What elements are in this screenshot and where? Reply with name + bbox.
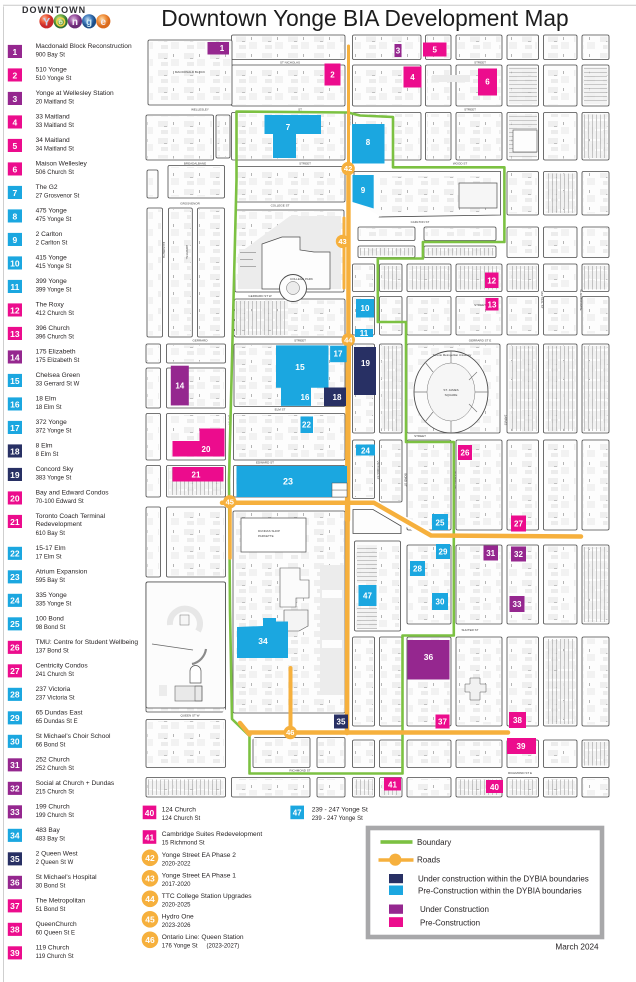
svg-text:RICHMOND ST E: RICHMOND ST E <box>508 771 532 775</box>
svg-text:Yonge at Wellesley Station: Yonge at Wellesley Station <box>36 90 114 97</box>
svg-text:8 Elm St: 8 Elm St <box>36 452 59 458</box>
svg-text:22: 22 <box>302 421 311 430</box>
svg-text:5: 5 <box>13 141 18 151</box>
svg-text:18 Elm St: 18 Elm St <box>36 405 62 411</box>
svg-text:98 Bond St: 98 Bond St <box>36 625 66 631</box>
svg-text:20 Maitland St: 20 Maitland St <box>36 100 75 106</box>
svg-text:176 Yonge St (2023-2027): 176 Yonge St (2023-2027) <box>162 943 239 949</box>
svg-text:Maison Wellesley: Maison Wellesley <box>36 160 88 167</box>
svg-text:CARLTON ST: CARLTON ST <box>411 220 430 224</box>
svg-text:510 Yonge: 510 Yonge <box>36 66 68 73</box>
svg-text:237 Victoria St: 237 Victoria St <box>36 695 75 701</box>
svg-text:QUEEN ST W: QUEEN ST W <box>181 714 200 718</box>
svg-text:37: 37 <box>438 718 447 727</box>
svg-text:SQUARE: SQUARE <box>445 393 458 397</box>
svg-text:BREADALBANE: BREADALBANE <box>184 162 206 166</box>
svg-text:23: 23 <box>10 572 20 582</box>
svg-text:43: 43 <box>145 874 155 884</box>
svg-text:36: 36 <box>10 878 20 888</box>
svg-text:Y: Y <box>43 17 51 29</box>
svg-text:21: 21 <box>10 517 20 527</box>
svg-text:JARVIS: JARVIS <box>504 415 508 425</box>
svg-text:39: 39 <box>517 742 526 751</box>
svg-text:900 Bay St: 900 Bay St <box>36 53 66 59</box>
svg-text:18 Elm: 18 Elm <box>36 395 57 402</box>
svg-text:24: 24 <box>10 596 20 606</box>
svg-text:SHERBOURNE: SHERBOURNE <box>579 289 583 310</box>
svg-text:372 Yonge St: 372 Yonge St <box>36 429 72 435</box>
svg-text:28: 28 <box>413 565 422 574</box>
svg-text:396 Church St: 396 Church St <box>36 335 75 341</box>
svg-text:175 Elizabeth: 175 Elizabeth <box>36 348 76 355</box>
svg-text:27 Grosvenor St: 27 Grosvenor St <box>36 194 80 200</box>
svg-text:STREET: STREET <box>414 434 426 438</box>
svg-text:Ontario Line: Queen Station: Ontario Line: Queen Station <box>162 934 244 941</box>
svg-text:175 Elizabeth St: 175 Elizabeth St <box>36 358 80 364</box>
svg-text:475 Yonge St: 475 Yonge St <box>36 217 72 223</box>
svg-text:412 Church St: 412 Church St <box>36 311 75 317</box>
svg-text:65 Dundas St E: 65 Dundas St E <box>36 719 78 725</box>
svg-text:4: 4 <box>410 73 415 82</box>
svg-text:WELLESLEY: WELLESLEY <box>191 108 209 112</box>
svg-text:17: 17 <box>10 423 20 433</box>
svg-text:335 Yonge St: 335 Yonge St <box>36 601 72 607</box>
svg-text:2: 2 <box>13 70 18 80</box>
svg-text:15: 15 <box>10 376 20 386</box>
svg-text:14: 14 <box>10 352 20 362</box>
svg-text:3: 3 <box>13 94 18 104</box>
svg-text:STREET: STREET <box>294 339 306 343</box>
svg-text:483 Bay: 483 Bay <box>36 827 61 834</box>
svg-text:Downtown Yonge BIA Development: Downtown Yonge BIA Development Map <box>161 5 568 31</box>
svg-text:Centricity Condos: Centricity Condos <box>36 662 89 669</box>
svg-text:239 - 247 Yonge St: 239 - 247 Yonge St <box>312 816 363 822</box>
svg-text:70-100 Edward St: 70-100 Edward St <box>36 499 84 505</box>
svg-text:35: 35 <box>337 718 346 727</box>
svg-text:WOOD ST: WOOD ST <box>453 162 467 166</box>
svg-text:VICTORIA ST: VICTORIA ST <box>376 461 380 480</box>
svg-text:6: 6 <box>485 78 490 87</box>
svg-text:Hydro One: Hydro One <box>162 914 194 921</box>
svg-text:QueenChurch: QueenChurch <box>36 921 77 928</box>
svg-text:35: 35 <box>10 854 20 864</box>
svg-text:42: 42 <box>344 164 352 173</box>
svg-text:483 Bay St: 483 Bay St <box>36 836 66 842</box>
svg-text:33 Maitland: 33 Maitland <box>36 113 70 120</box>
svg-text:Concord Sky: Concord Sky <box>36 466 74 473</box>
svg-text:40: 40 <box>490 783 499 792</box>
svg-text:ST NICHOLAS: ST NICHOLAS <box>280 61 300 65</box>
svg-text:26: 26 <box>10 643 20 653</box>
svg-text:St Michael's Hospital: St Michael's Hospital <box>36 874 98 881</box>
svg-text:2020-2025: 2020-2025 <box>162 902 191 908</box>
svg-text:17: 17 <box>334 350 343 359</box>
svg-text:Cambridge Suites Redevelopment: Cambridge Suites Redevelopment <box>162 831 263 838</box>
svg-text:Toronto Metropolitan Universit: Toronto Metropolitan University <box>433 353 472 357</box>
svg-text:Bay and Edward Condos: Bay and Edward Condos <box>36 489 110 496</box>
svg-text:2 Carlton: 2 Carlton <box>36 231 63 238</box>
svg-text:46: 46 <box>145 935 155 945</box>
svg-text:Under construction within the: Under construction within the DYBIA boun… <box>418 875 589 884</box>
svg-text:11: 11 <box>360 329 369 338</box>
svg-text:252 Church St: 252 Church St <box>36 766 75 772</box>
svg-text:2 Queen West: 2 Queen West <box>36 850 78 857</box>
svg-text:372 Yonge: 372 Yonge <box>36 419 68 426</box>
svg-text:RICHMOND ST: RICHMOND ST <box>289 769 310 773</box>
svg-text:2023-2026: 2023-2026 <box>162 923 191 929</box>
svg-text:DUNDAS SHOP: DUNDAS SHOP <box>258 529 280 533</box>
svg-text:415 Yonge: 415 Yonge <box>36 254 68 261</box>
svg-text:119 Church St: 119 Church St <box>36 954 74 960</box>
svg-text:ST. JAMES: ST. JAMES <box>443 388 458 392</box>
svg-text:9: 9 <box>13 235 18 245</box>
svg-text:14: 14 <box>175 382 184 391</box>
svg-text:STREET: STREET <box>474 303 486 307</box>
svg-text:g: g <box>86 17 92 28</box>
svg-text:399 Yonge St: 399 Yonge St <box>36 288 72 294</box>
svg-text:STREET: STREET <box>299 162 311 166</box>
svg-text:2020-2022: 2020-2022 <box>162 861 191 867</box>
svg-text:27: 27 <box>514 520 523 529</box>
svg-text:33 Maitland St: 33 Maitland St <box>36 123 75 129</box>
svg-text:n: n <box>72 17 78 28</box>
svg-text:3: 3 <box>396 46 401 55</box>
svg-text:1: 1 <box>220 44 225 53</box>
svg-text:475 Yonge: 475 Yonge <box>36 207 68 214</box>
svg-text:Pre-Construction: Pre-Construction <box>420 918 480 927</box>
svg-text:Atrium Expansion: Atrium Expansion <box>36 568 88 575</box>
svg-text:43: 43 <box>338 237 346 246</box>
svg-text:12: 12 <box>487 277 496 286</box>
svg-text:8 Elm: 8 Elm <box>36 442 53 449</box>
svg-text:124 Church: 124 Church <box>162 806 196 813</box>
svg-text:24: 24 <box>361 447 370 456</box>
svg-text:18: 18 <box>333 393 342 402</box>
svg-text:ELIZABETH: ELIZABETH <box>162 242 166 258</box>
svg-text:Pre-Construction within the DY: Pre-Construction within the DYBIA bounda… <box>418 887 582 896</box>
svg-text:29: 29 <box>10 713 20 723</box>
svg-text:16: 16 <box>301 393 310 402</box>
svg-text:36: 36 <box>424 652 434 662</box>
svg-text:Chelsea Green: Chelsea Green <box>36 372 81 379</box>
svg-text:100 Bond: 100 Bond <box>36 615 65 622</box>
svg-text:15 Richmond St: 15 Richmond St <box>162 841 205 847</box>
svg-text:COLLEGE ST: COLLEGE ST <box>271 204 290 208</box>
svg-text:137 Bond St: 137 Bond St <box>36 648 69 654</box>
svg-text:199 Church St: 199 Church St <box>36 813 75 819</box>
svg-text:19: 19 <box>361 359 370 368</box>
svg-text:20: 20 <box>10 493 20 503</box>
svg-text:GROSVENOR: GROSVENOR <box>180 202 200 206</box>
svg-text:ELM ST: ELM ST <box>275 408 286 412</box>
svg-text:15-17 Elm: 15-17 Elm <box>36 545 67 552</box>
svg-text:Redevelopment: Redevelopment <box>36 521 82 528</box>
svg-text:e: e <box>101 17 107 28</box>
svg-text:EDWARD ST: EDWARD ST <box>256 461 274 465</box>
svg-text:MUTUAL ST: MUTUAL ST <box>540 292 544 309</box>
svg-text:41: 41 <box>145 832 155 842</box>
svg-text:12: 12 <box>10 305 20 315</box>
svg-text:45: 45 <box>226 497 234 506</box>
svg-text:30 Bond St: 30 Bond St <box>36 883 66 889</box>
svg-text:2: 2 <box>330 71 335 80</box>
svg-text:5: 5 <box>432 46 437 55</box>
svg-text:7: 7 <box>286 123 291 132</box>
svg-text:506 Church St: 506 Church St <box>36 170 75 176</box>
svg-text:26: 26 <box>461 449 470 458</box>
svg-text:30: 30 <box>436 598 445 607</box>
svg-text:COLLEGE PARK: COLLEGE PARK <box>290 277 313 281</box>
svg-text:STREET: STREET <box>474 61 486 65</box>
svg-text:Yonge Street EA Phase 2: Yonge Street EA Phase 2 <box>162 852 237 859</box>
svg-text:44: 44 <box>145 894 155 904</box>
svg-text:PARKETTE: PARKETTE <box>258 534 274 538</box>
svg-text:119 Church: 119 Church <box>36 944 70 951</box>
svg-text:45: 45 <box>145 915 155 925</box>
svg-text:33: 33 <box>10 807 20 817</box>
svg-text:Under Construction: Under Construction <box>420 905 489 914</box>
svg-text:GERRARD ST W: GERRARD ST W <box>248 294 271 298</box>
svg-text:7: 7 <box>13 188 18 198</box>
svg-text:31: 31 <box>10 760 20 770</box>
svg-text:41: 41 <box>388 781 397 790</box>
svg-text:65 Dundas East: 65 Dundas East <box>36 709 83 716</box>
svg-text:MACDONALD BLOCK: MACDONALD BLOCK <box>175 70 205 74</box>
svg-text:40: 40 <box>145 808 155 818</box>
svg-text:Boundary: Boundary <box>417 838 451 847</box>
svg-text:34: 34 <box>258 636 268 646</box>
svg-text:The Metropolitan: The Metropolitan <box>36 897 86 904</box>
svg-text:237 Victoria: 237 Victoria <box>36 686 71 693</box>
svg-text:33: 33 <box>513 600 522 609</box>
svg-text:13: 13 <box>488 301 497 310</box>
svg-text:17 Elm St: 17 Elm St <box>36 554 62 560</box>
svg-text:34 Maitland St: 34 Maitland St <box>36 147 75 153</box>
svg-text:415 Yonge St: 415 Yonge St <box>36 264 72 270</box>
svg-text:TMU: Centre for Student Wellbe: TMU: Centre for Student Wellbeing <box>36 639 139 646</box>
svg-text:BOND ST: BOND ST <box>404 473 408 487</box>
svg-text:STREET: STREET <box>464 108 476 112</box>
svg-text:Yonge Street EA Phase 1: Yonge Street EA Phase 1 <box>162 873 237 880</box>
svg-text:37: 37 <box>10 901 20 911</box>
svg-text:46: 46 <box>286 728 294 737</box>
svg-text:10: 10 <box>10 258 20 268</box>
svg-text:51 Bond St: 51 Bond St <box>36 907 66 913</box>
svg-text:8: 8 <box>366 138 371 147</box>
svg-text:15: 15 <box>295 362 305 372</box>
svg-text:16: 16 <box>10 399 20 409</box>
svg-text:St Michael's Choir School: St Michael's Choir School <box>36 733 111 740</box>
svg-text:34: 34 <box>10 831 20 841</box>
svg-text:22: 22 <box>10 549 20 559</box>
svg-text:215 Church St: 215 Church St <box>36 789 75 795</box>
svg-text:10: 10 <box>361 304 370 313</box>
svg-text:DOWNTOWN: DOWNTOWN <box>22 5 86 15</box>
svg-text:1: 1 <box>13 47 18 57</box>
svg-text:199 Church: 199 Church <box>36 803 70 810</box>
svg-text:SHUTER ST: SHUTER ST <box>461 628 478 632</box>
svg-text:396 Church: 396 Church <box>36 325 70 332</box>
svg-text:21: 21 <box>192 471 201 480</box>
svg-text:The Roxy: The Roxy <box>36 301 65 308</box>
svg-text:399 Yonge: 399 Yonge <box>36 278 68 285</box>
svg-text:335 Yonge: 335 Yonge <box>36 592 68 599</box>
svg-text:60 Queen St E: 60 Queen St E <box>36 930 75 936</box>
svg-text:GERRARD ST E: GERRARD ST E <box>469 339 491 343</box>
svg-text:42: 42 <box>145 853 155 863</box>
svg-text:32: 32 <box>514 550 523 559</box>
svg-text:29: 29 <box>439 548 448 557</box>
svg-text:20: 20 <box>202 445 211 454</box>
svg-text:Roads: Roads <box>417 855 440 864</box>
svg-text:TTC College Station Upgrades: TTC College Station Upgrades <box>162 893 252 900</box>
svg-text:44: 44 <box>344 336 353 345</box>
svg-text:2 Queen St W: 2 Queen St W <box>36 860 74 866</box>
svg-text:6: 6 <box>13 164 18 174</box>
svg-text:2017-2020: 2017-2020 <box>162 882 191 888</box>
svg-text:30: 30 <box>10 737 20 747</box>
svg-text:383 Yonge St: 383 Yonge St <box>36 476 72 482</box>
svg-text:124 Church St: 124 Church St <box>162 816 201 822</box>
svg-text:610 Bay St: 610 Bay St <box>36 531 66 537</box>
svg-text:241 Church St: 241 Church St <box>36 672 75 678</box>
svg-text:25: 25 <box>10 619 20 629</box>
svg-text:252 Church: 252 Church <box>36 756 70 763</box>
svg-text:19: 19 <box>10 470 20 480</box>
svg-text:34 Maitland: 34 Maitland <box>36 137 70 144</box>
svg-text:38: 38 <box>10 925 20 935</box>
svg-text:31: 31 <box>486 549 495 558</box>
svg-text:Social at Church + Dundas: Social at Church + Dundas <box>36 780 115 787</box>
svg-text:32: 32 <box>10 784 20 794</box>
svg-text:28: 28 <box>10 690 20 700</box>
svg-text:39: 39 <box>10 948 20 958</box>
svg-text:HOSPITAL: HOSPITAL <box>185 245 189 260</box>
svg-text:25: 25 <box>436 519 445 528</box>
svg-text:2 Carlton St: 2 Carlton St <box>36 241 68 247</box>
svg-text:66 Bond St: 66 Bond St <box>36 742 66 748</box>
svg-text:March 2024: March 2024 <box>555 943 599 952</box>
svg-text:GERRARD: GERRARD <box>192 339 208 343</box>
svg-text:595 Bay St: 595 Bay St <box>36 578 66 584</box>
svg-text:Macdonald Block Reconstruction: Macdonald Block Reconstruction <box>36 43 132 50</box>
svg-text:27: 27 <box>10 666 20 676</box>
svg-text:11: 11 <box>10 282 19 292</box>
svg-text:47: 47 <box>293 809 302 818</box>
svg-text:239 - 247 Yonge St: 239 - 247 Yonge St <box>312 806 368 813</box>
svg-text:The G2: The G2 <box>36 184 58 191</box>
svg-text:23: 23 <box>283 477 293 487</box>
svg-text:510 Yonge St: 510 Yonge St <box>36 76 72 82</box>
svg-text:47: 47 <box>363 592 372 601</box>
svg-text:18: 18 <box>10 446 20 456</box>
svg-text:33 Gerrard St W: 33 Gerrard St W <box>36 382 80 388</box>
svg-text:4: 4 <box>13 117 18 127</box>
svg-text:9: 9 <box>361 186 366 195</box>
svg-text:38: 38 <box>513 716 522 725</box>
svg-text:Toronto Coach Terminal: Toronto Coach Terminal <box>36 513 106 520</box>
svg-text:13: 13 <box>10 329 20 339</box>
svg-text:8: 8 <box>13 211 18 221</box>
